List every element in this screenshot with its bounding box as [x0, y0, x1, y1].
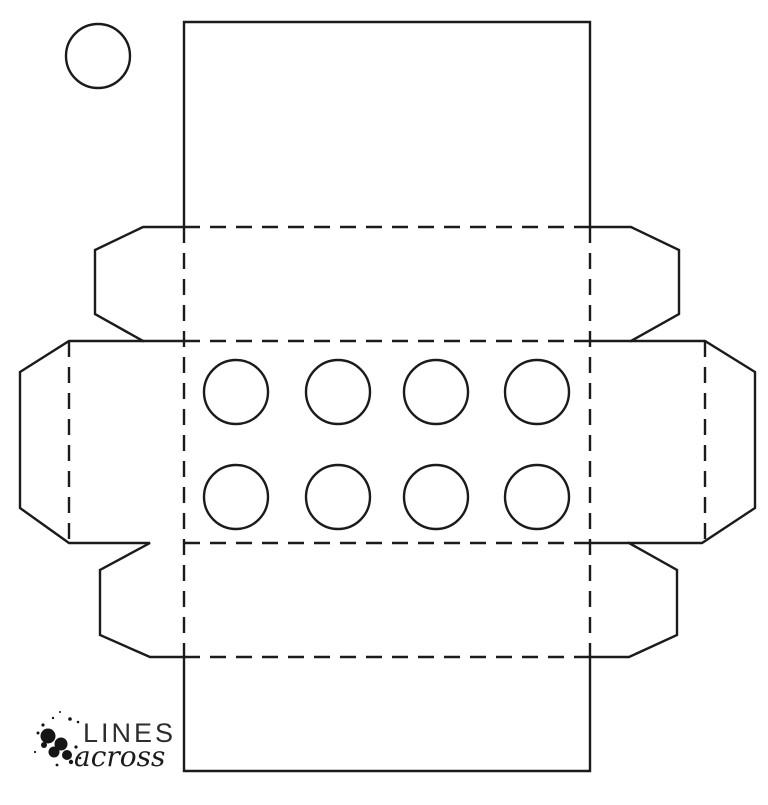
- splatter-dot: [68, 717, 72, 721]
- splatter-dot: [69, 760, 73, 764]
- stud-circle: [204, 360, 268, 424]
- logo-text-across: across: [74, 740, 165, 773]
- cut-line: [95, 227, 184, 341]
- splatter-dot: [41, 723, 44, 726]
- splatter-dot: [37, 732, 40, 735]
- splatter-dot: [52, 717, 54, 719]
- lines-across-logo: LINES across: [34, 711, 176, 773]
- stud-circle: [306, 360, 370, 424]
- cut-line: [590, 227, 679, 341]
- cut-line: [184, 22, 590, 227]
- splatter-dot: [62, 750, 72, 760]
- stud-circle: [404, 465, 468, 529]
- splatter-dot: [41, 729, 56, 744]
- splatter-dot: [49, 747, 60, 758]
- splatter-dot: [77, 721, 80, 724]
- cut-lines-group: [20, 22, 755, 771]
- splatter-dot: [59, 711, 61, 713]
- splatter-dot: [56, 764, 59, 767]
- fold-lines-group: [69, 227, 705, 657]
- splatter-dot: [34, 751, 36, 753]
- stud-circle: [306, 465, 370, 529]
- cut-line: [590, 543, 677, 657]
- stud-circles-group: [66, 24, 569, 529]
- cut-line: [20, 341, 184, 657]
- stud-circle: [204, 465, 268, 529]
- cut-line: [184, 657, 590, 771]
- cut-line: [590, 341, 755, 543]
- punch-out-circle: [66, 24, 130, 88]
- stud-circle: [505, 360, 569, 424]
- box-template-diagram: LINES across: [0, 0, 768, 805]
- stud-circle: [505, 465, 569, 529]
- splatter-dot: [41, 742, 47, 748]
- stud-circle: [404, 360, 468, 424]
- printable-template-page: LINES across: [0, 0, 768, 805]
